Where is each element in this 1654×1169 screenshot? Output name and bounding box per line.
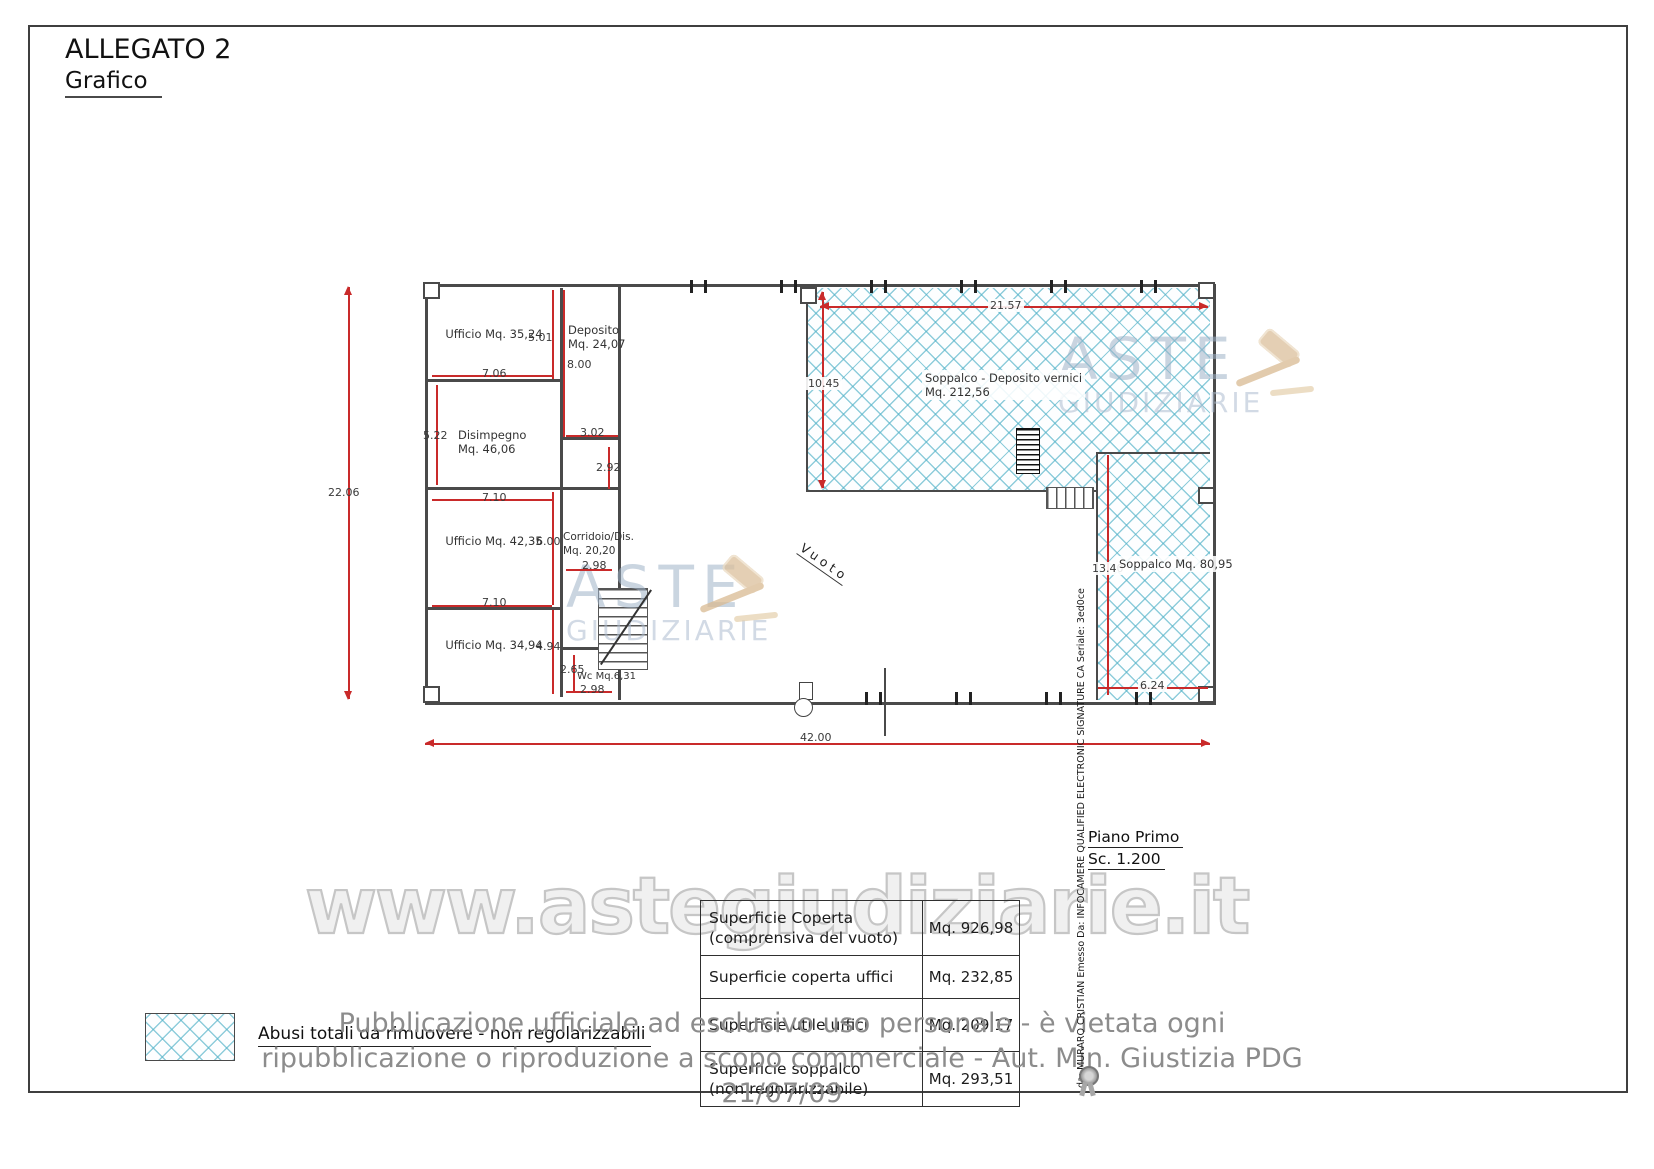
window-tick — [865, 692, 882, 705]
dim-label-total-width: 42.00 — [800, 731, 832, 744]
window-tick — [1045, 692, 1062, 705]
table-cell-label: Superficie Coperta (comprensiva del vuot… — [701, 901, 923, 955]
dim-label: 6.24 — [1138, 679, 1167, 692]
dim-arrow — [1199, 302, 1208, 310]
window-tick — [955, 692, 972, 705]
dim-label: 7.10 — [482, 491, 507, 504]
room-label-corridoio: Corridoio/Dis. Mq. 20,20 — [563, 530, 634, 558]
dim-line-soppalco-height — [822, 292, 824, 488]
signature-seal-icon — [1077, 1066, 1101, 1100]
dim-label: 7.06 — [482, 367, 507, 380]
footer-line2: ripubblicazione o riproduzione a scopo c… — [212, 1041, 1352, 1111]
scale-note-line1: Piano Primo — [1088, 828, 1183, 848]
page-subtitle-wrap: Grafico — [65, 68, 162, 98]
dim-line — [552, 492, 554, 605]
column-marker — [423, 686, 440, 703]
dim-arrow — [344, 286, 352, 295]
table-cell-value: Mq. 232,85 — [923, 956, 1019, 998]
scale-note-line2: Sc. 1.200 — [1088, 850, 1165, 870]
table-cell-value: Mq. 926,98 — [923, 901, 1019, 955]
wall-disimpegno-bottom — [428, 487, 621, 490]
gavel-icon — [1228, 334, 1323, 404]
window-tick — [780, 280, 797, 293]
staircase-soppalco — [1046, 487, 1094, 509]
dim-line — [1107, 455, 1109, 695]
page-dash: - — [775, 1076, 781, 1095]
room-label-ufficio3: Ufficio Mq. 34,94 — [430, 638, 558, 652]
window-tick — [960, 280, 977, 293]
column-marker — [1198, 282, 1215, 299]
room-label-wc: Wc Mq.6,31 — [577, 670, 636, 684]
table-row: Superficie Coperta (comprensiva del vuot… — [701, 901, 1019, 956]
footer-line1: Pubblicazione ufficiale ad esclusivo uso… — [212, 1006, 1352, 1041]
gavel-icon — [692, 560, 787, 630]
dim-label: 2.98 — [580, 683, 605, 696]
dim-arrow — [425, 739, 434, 747]
door-symbol — [794, 698, 813, 717]
dim-label: 2.92 — [596, 461, 621, 474]
column-marker — [1198, 487, 1215, 504]
dim-label: 2.98 — [582, 559, 607, 572]
page-subtitle: Grafico — [65, 68, 162, 98]
column-marker — [423, 282, 440, 299]
digital-signature-text: da: MURARO CRISTIAN Emesso Da: INFOCAMER… — [1076, 550, 1087, 1088]
dim-label: 8.00 — [567, 358, 592, 371]
table-cell-label: Superficie coperta uffici — [701, 956, 923, 998]
column-marker — [800, 287, 817, 304]
dim-label: 5.22 — [423, 429, 448, 442]
dim-arrow — [818, 291, 826, 300]
room-label-deposito: Deposito Mq. 24,07 — [568, 323, 625, 351]
dim-label-total-height: 22.06 — [328, 486, 360, 499]
window-tick — [1135, 692, 1152, 705]
dim-arrow — [344, 691, 352, 700]
scale-note-text1: Piano Primo — [1088, 828, 1183, 848]
window-tick — [870, 280, 887, 293]
window-tick — [690, 280, 707, 293]
dim-line — [563, 290, 565, 437]
document-page: ALLEGATO 2 Grafico www.astegiudiziarie.i… — [0, 0, 1654, 1169]
page-title: ALLEGATO 2 — [65, 34, 231, 65]
dim-arrow — [1201, 739, 1210, 747]
footer-disclaimer: Pubblicazione ufficiale ad esclusivo uso… — [212, 1006, 1352, 1111]
room-label-ufficio2: Ufficio Mq. 42,35 — [430, 534, 558, 548]
dim-label: 10.45 — [806, 377, 842, 390]
table-row: Superficie coperta uffici Mq. 232,85 — [701, 956, 1019, 999]
dim-label: 7.10 — [482, 596, 507, 609]
window-tick — [1050, 280, 1067, 293]
window-tick — [1140, 280, 1157, 293]
room-label-disimpegno: Disimpegno Mq. 46,06 — [458, 428, 526, 456]
ladder-icon — [1016, 428, 1040, 474]
column-marker — [1198, 686, 1215, 703]
scale-note-text2: Sc. 1.200 — [1088, 850, 1165, 870]
dim-arrow — [820, 302, 829, 310]
room-label-ufficio1: Ufficio Mq. 35,24 — [430, 327, 558, 341]
dim-label: 21.57 — [988, 299, 1024, 312]
dim-arrow — [818, 480, 826, 489]
room-label-soppalco-deposito: Soppalco - Deposito vernici Mq. 212,56 — [922, 370, 1085, 400]
section-line — [884, 668, 886, 736]
room-label-soppalco-right: Soppalco Mq. 80,95 — [1116, 556, 1236, 572]
dim-label: 3.02 — [580, 426, 605, 439]
